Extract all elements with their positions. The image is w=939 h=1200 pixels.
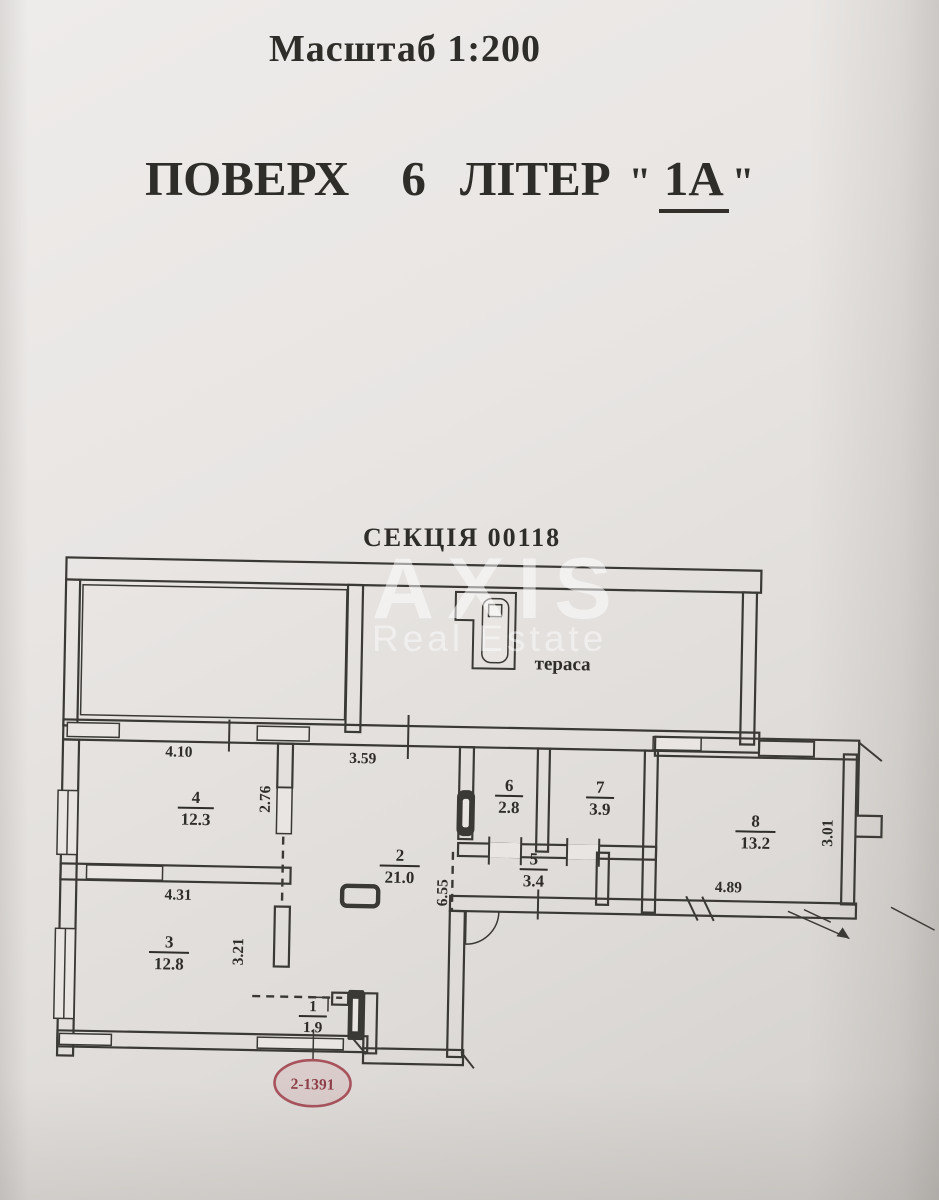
room-3-label: 3 12.8 xyxy=(149,932,190,974)
dim-room8-depth: 3.01 xyxy=(819,819,837,846)
room-7-label: 7 3.9 xyxy=(586,777,615,819)
dim-room3-width: 4.31 xyxy=(164,886,191,904)
room-5-label: 5 3.4 xyxy=(519,849,548,891)
room-2-area: 21.0 xyxy=(384,868,414,888)
dim-room8-width: 4.89 xyxy=(715,879,743,897)
room-7-number: 7 xyxy=(596,778,605,797)
floor-plan-drawing: 4 12.3 2 21.0 6 2.8 7 3.9 5 xyxy=(0,0,939,1200)
dim-hall-length: 6.55 xyxy=(434,879,452,907)
room-3-number: 3 xyxy=(165,932,174,951)
room-2-label: 2 21.0 xyxy=(379,845,420,887)
dim-terrace-step: 3.59 xyxy=(349,750,377,768)
room-3-area: 12.8 xyxy=(154,954,184,974)
entry-hall-walls xyxy=(331,909,477,1069)
room-6-label: 6 2.8 xyxy=(495,776,524,818)
terrace-walls xyxy=(63,557,763,765)
scanned-floor-plan-page: Масштаб 1:200 ПОВЕРХ 6 ЛІТЕР " 1А " СЕКЦ… xyxy=(0,0,939,1200)
room-6-area: 2.8 xyxy=(498,798,520,817)
room-8-label: 8 13.2 xyxy=(735,811,776,853)
terrace-label: тераса xyxy=(534,653,591,675)
terrace-shaft xyxy=(455,592,516,669)
room-1-number: 1 xyxy=(309,998,317,1015)
room-8-number: 8 xyxy=(751,812,760,831)
room-8-area: 13.2 xyxy=(740,833,770,853)
room-7-area: 3.9 xyxy=(589,799,611,818)
room-6-number: 6 xyxy=(505,776,514,795)
partition-walls-right xyxy=(451,747,658,948)
room-2-number: 2 xyxy=(395,846,404,865)
room-5-number: 5 xyxy=(529,849,538,868)
dim-room4-depth: 2.76 xyxy=(257,785,275,813)
dim-room4-width: 4.10 xyxy=(165,743,193,761)
stamp-code: 2-1391 xyxy=(290,1076,334,1094)
room-4-label: 4 12.3 xyxy=(177,788,214,830)
room-5-area: 3.4 xyxy=(523,871,545,890)
dim-room3-depth: 3.21 xyxy=(230,938,248,965)
room-4-number: 4 xyxy=(192,788,201,807)
dimension-labels: 4.10 3.59 4.31 4.89 2.76 3.21 6.55 3.01 xyxy=(161,743,838,976)
room-4-area: 12.3 xyxy=(181,810,211,830)
room-1-area: 1.9 xyxy=(303,1019,323,1036)
